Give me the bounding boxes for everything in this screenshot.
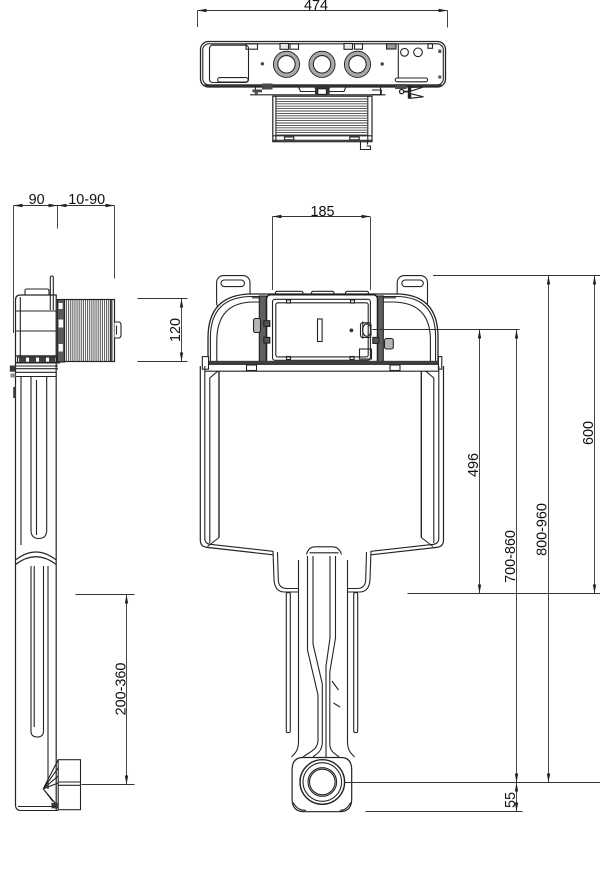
svg-text:474: 474 bbox=[304, 0, 328, 14]
svg-text:496: 496 bbox=[466, 453, 482, 477]
svg-text:600: 600 bbox=[581, 421, 597, 445]
svg-text:90: 90 bbox=[29, 192, 45, 208]
svg-text:800-960: 800-960 bbox=[535, 503, 551, 556]
svg-text:55: 55 bbox=[503, 792, 519, 808]
svg-text:120: 120 bbox=[168, 318, 184, 342]
svg-text:700-860: 700-860 bbox=[503, 530, 519, 583]
svg-text:10-90: 10-90 bbox=[68, 192, 105, 208]
svg-text:185: 185 bbox=[310, 204, 334, 220]
svg-text:200-360: 200-360 bbox=[114, 663, 130, 716]
